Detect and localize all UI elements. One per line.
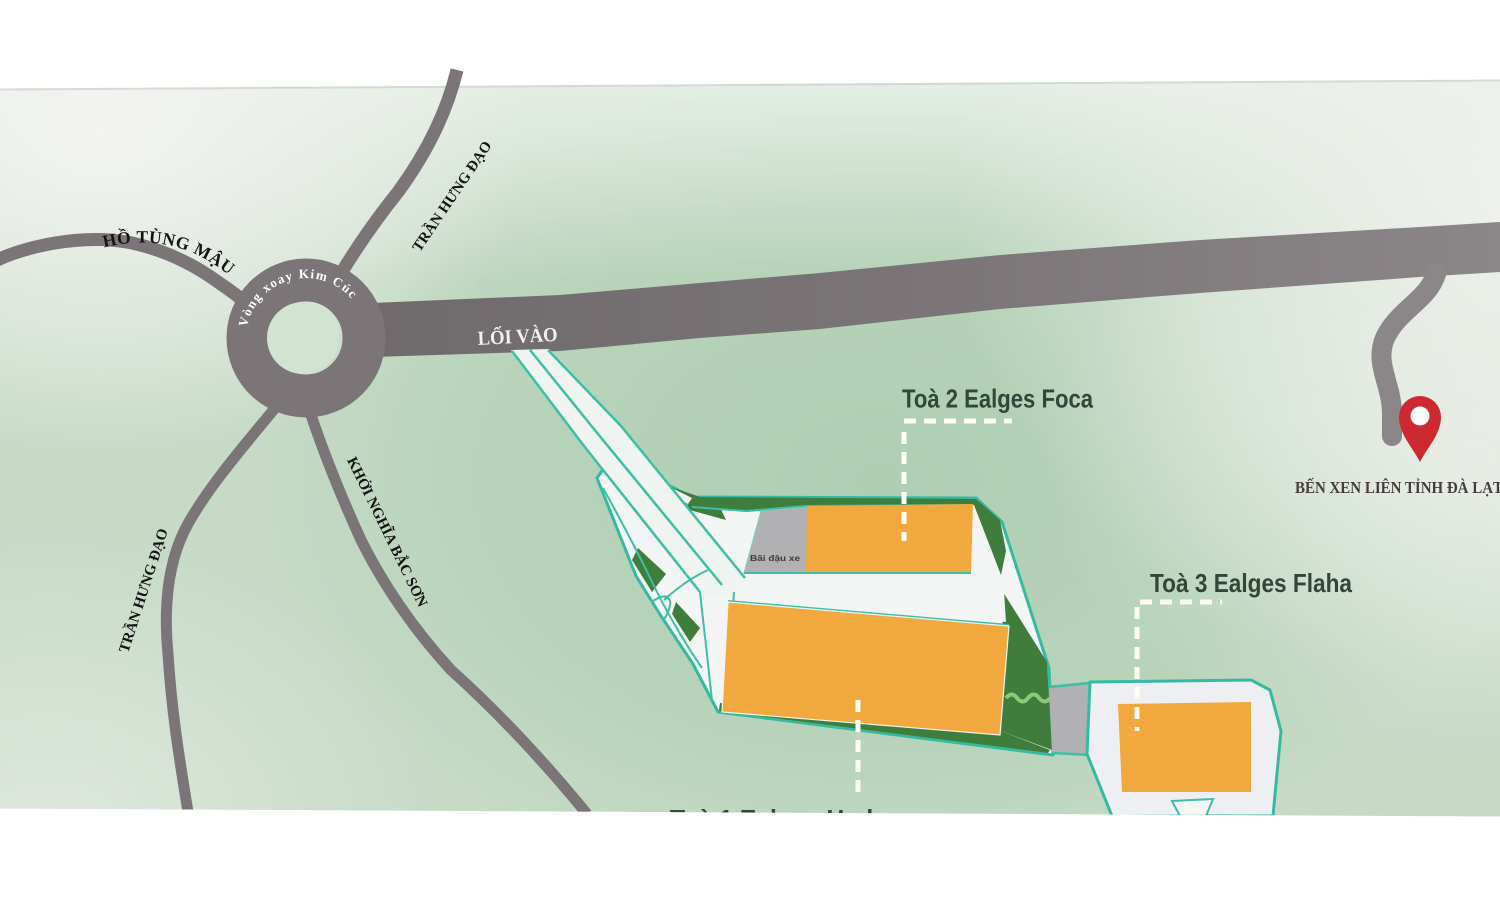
- svg-text:Bãi đậu xe: Bãi đậu xe: [750, 554, 801, 563]
- svg-text:Toà 2 Ealges Foca: Toà 2 Ealges Foca: [902, 384, 1093, 414]
- svg-text:Toà 3 Ealges Flaha: Toà 3 Ealges Flaha: [1150, 568, 1352, 598]
- svg-text:BẾN XEN LIÊN TỈNH ĐÀ LẠT: BẾN XEN LIÊN TỈNH ĐÀ LẠT: [1295, 478, 1500, 497]
